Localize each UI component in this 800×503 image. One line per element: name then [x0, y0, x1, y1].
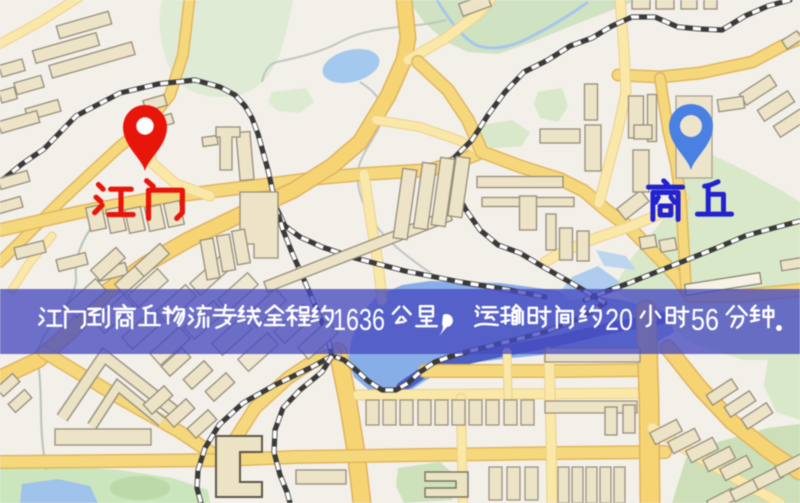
svg-text:1636: 1636	[333, 302, 385, 337]
svg-text:20: 20	[605, 302, 633, 337]
svg-text:56: 56	[691, 302, 719, 337]
